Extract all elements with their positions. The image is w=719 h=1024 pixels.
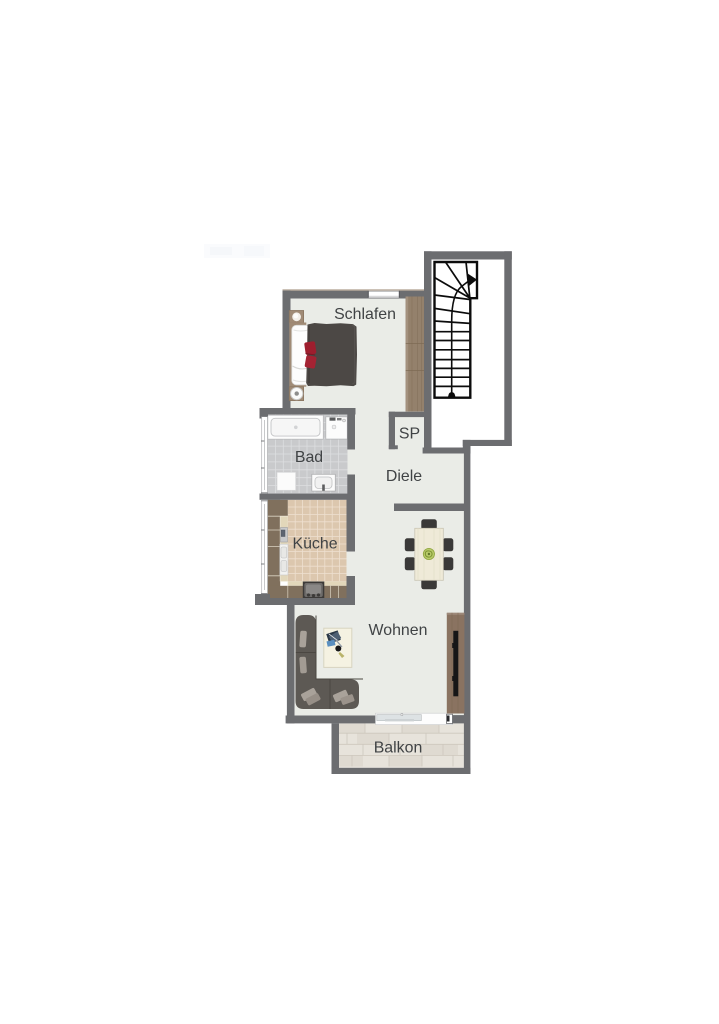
svg-text:Küche: Küche [292,536,337,553]
svg-text:Diele: Diele [386,468,422,485]
svg-text:Balkon: Balkon [374,740,423,757]
svg-text:Bad: Bad [295,449,323,466]
svg-text:Wohnen: Wohnen [369,622,428,639]
svg-text:Schlafen: Schlafen [334,306,396,323]
svg-text:SP: SP [399,426,420,443]
